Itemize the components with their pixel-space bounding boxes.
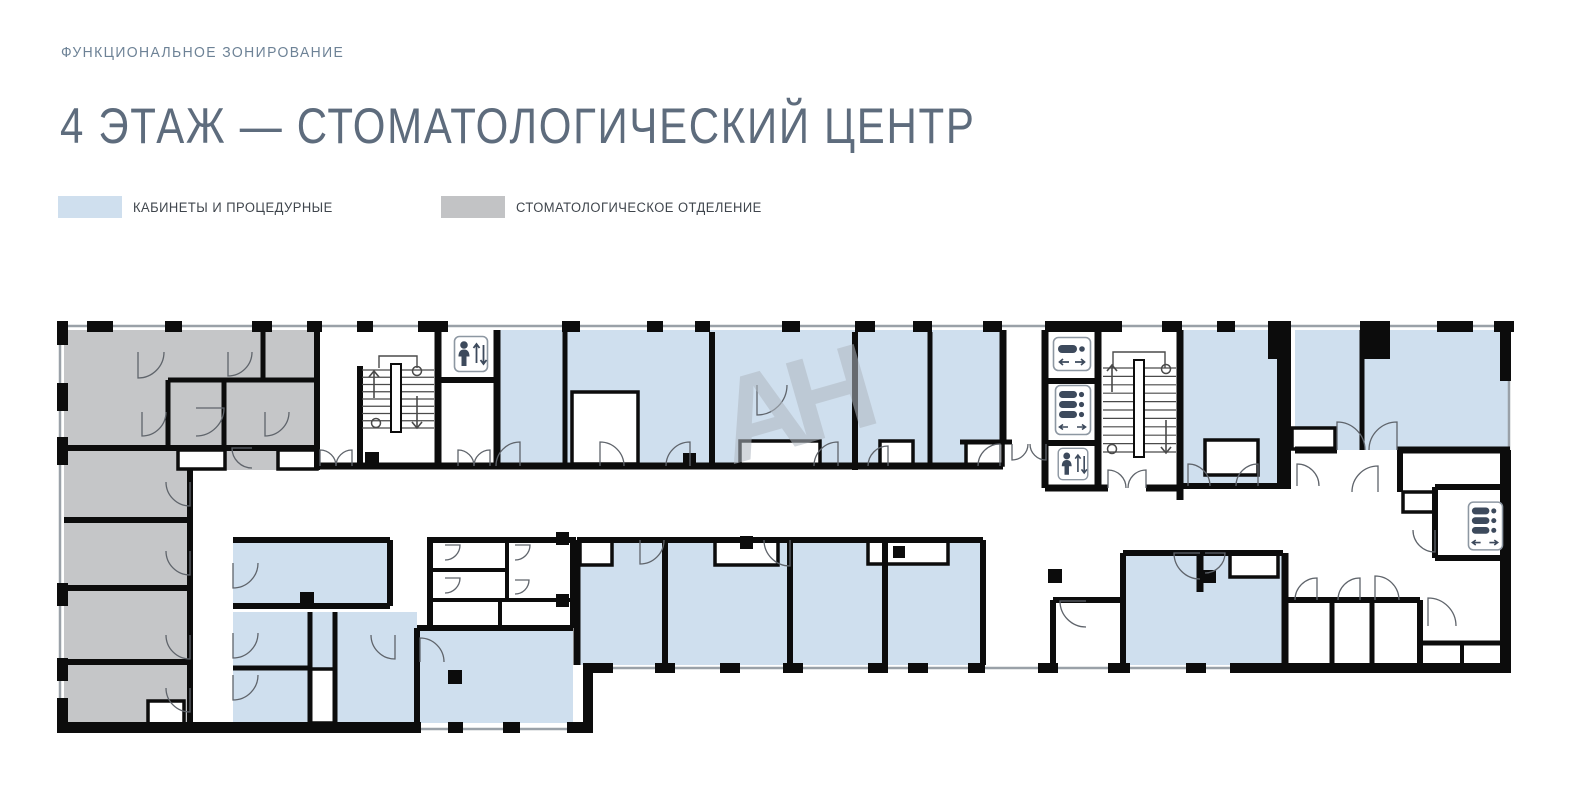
wall-pier [1437, 321, 1473, 332]
wall-pier [1500, 321, 1511, 381]
closet [880, 441, 913, 465]
cabinet-zone-room [417, 628, 573, 723]
wall-pier [57, 321, 68, 345]
door-arc [445, 545, 460, 560]
closet [868, 540, 948, 564]
door-arc [1295, 578, 1317, 600]
wall-pier [300, 592, 314, 606]
wall-pier [783, 663, 803, 673]
wall-pier [556, 594, 569, 607]
elevator-bed-icon [1054, 338, 1091, 371]
wall-pier [983, 321, 1002, 332]
wall-pier [913, 321, 932, 332]
wall-pier [252, 321, 272, 332]
wall-pier [165, 321, 182, 332]
door-arc [1375, 576, 1399, 600]
wall-pier [695, 321, 710, 332]
floor-plan: АН [0, 0, 1580, 794]
wall-pier [357, 321, 373, 332]
wall-pier [307, 321, 322, 332]
wall-pier [908, 663, 928, 673]
wall-pier [418, 321, 448, 332]
wall-pier [968, 663, 985, 673]
wall-pier [562, 321, 580, 332]
door-arc [1352, 466, 1378, 492]
wall-pier [1217, 321, 1235, 332]
wall-pier [1162, 321, 1182, 332]
wall-pier [57, 383, 68, 411]
wall-pier [1360, 321, 1390, 359]
door-arc [1128, 470, 1146, 488]
door-arc [1060, 601, 1086, 627]
stair-start-marker [1162, 365, 1171, 374]
wall-pier [567, 722, 588, 733]
wall-pier [1038, 663, 1058, 673]
wall-pier [1500, 450, 1511, 670]
wall-pier [855, 321, 875, 332]
stairwell [362, 356, 434, 432]
wall-pier [57, 437, 68, 465]
wall-pier [448, 670, 462, 684]
door-arc [1428, 598, 1456, 626]
stairwell [1103, 352, 1176, 457]
wall-pier [365, 452, 379, 466]
wall-pier [57, 722, 421, 733]
closet [966, 442, 1003, 465]
closet [1292, 428, 1335, 449]
wall-pier [1108, 663, 1130, 673]
wall-pier [57, 658, 68, 681]
wall-pier [1048, 569, 1062, 583]
wall-pier [1277, 321, 1291, 489]
closet [1403, 492, 1435, 512]
closet [572, 392, 638, 464]
wall-pier [57, 583, 68, 606]
wall-pier [503, 722, 520, 733]
wall-pier [782, 321, 800, 332]
wall-pier [1230, 663, 1511, 673]
elevator-passenger-icon [1058, 448, 1088, 479]
wall-pier [893, 546, 905, 558]
wall-pier [647, 321, 663, 332]
page: ФУНКЦИОНАЛЬНОЕ ЗОНИРОВАНИЕ 4 ЭТАЖ — СТОМ… [0, 0, 1580, 794]
closet [310, 669, 335, 723]
closet [178, 450, 225, 469]
closet [580, 540, 612, 565]
closet [1205, 440, 1258, 475]
wall-pier [87, 321, 113, 332]
wall-pier [655, 663, 675, 673]
door-arc [1108, 470, 1126, 488]
wall-pier [740, 536, 753, 549]
wall-pier [448, 722, 463, 733]
elevator-passenger-icon [455, 337, 488, 372]
wall-pier [868, 663, 888, 673]
wall-pier [1186, 663, 1206, 673]
door-arc [515, 580, 529, 594]
stair-start-marker [372, 419, 381, 428]
wall-pier [556, 532, 569, 545]
stair-divider [1134, 360, 1144, 457]
door-arc [445, 578, 460, 593]
door-arc [1297, 464, 1319, 486]
closet [278, 450, 317, 469]
elevator-bed2-icon [1468, 502, 1502, 550]
wall-pier [720, 663, 740, 673]
stair-divider [391, 364, 401, 432]
dental-zone-room [64, 470, 190, 728]
wall-pier [57, 698, 68, 733]
elevator-bed2-icon [1056, 386, 1091, 435]
door-arc [1338, 578, 1360, 600]
door-arc [1012, 444, 1028, 460]
door-arc [515, 545, 530, 560]
closet [1230, 553, 1278, 577]
wall-pier [1045, 321, 1122, 332]
door-arc [1413, 530, 1435, 552]
